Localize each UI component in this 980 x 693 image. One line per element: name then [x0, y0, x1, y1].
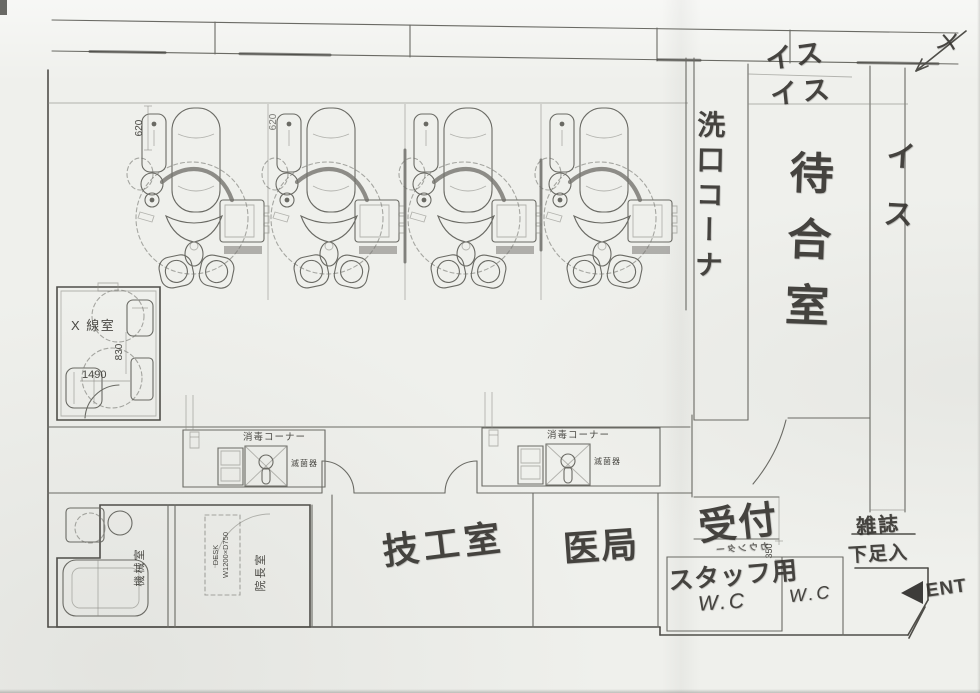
chair-note-right: イス [870, 139, 920, 257]
magazines-label: 雑誌 [855, 508, 901, 540]
desk-label-2: W1200×D750 [221, 532, 230, 578]
sterilizer-label-2: 滅菌器 [594, 456, 621, 466]
dental-unit-2 [262, 108, 404, 290]
dental-unit-3 [399, 108, 541, 290]
sterilize-label-1: 消毒コーナー [243, 431, 306, 443]
rinse-corner-label: 洗口コーナ [686, 110, 729, 286]
desk-label-1: DESK [211, 545, 220, 565]
public-wc-label: W.C [788, 582, 833, 607]
sterilize-counter-2: 消毒コーナー 滅菌器 [482, 392, 660, 486]
chair-note-2: イス [768, 67, 837, 113]
waiting-room-label: 待合室 [769, 149, 840, 349]
doctors-office-label: 医局 [561, 515, 640, 572]
scan-bottom-edge [0, 689, 980, 693]
xray-room-label: X 線室 [71, 318, 115, 333]
scan-corner-artifact [0, 0, 7, 15]
xray-room: X 線室 830 1490 [57, 283, 160, 420]
sterilize-counter-1: 消毒コーナー 滅菌器 [183, 395, 325, 487]
director-room-label: 院長室 [253, 553, 267, 592]
dim-620-1: 620 [134, 119, 145, 136]
dental-unit-4 [535, 108, 677, 290]
dim-830: 830 [114, 343, 125, 360]
machine-director-block: 機械室 院長室 DESK W1200×D750 [57, 505, 310, 627]
entrance-arrow [901, 581, 925, 638]
staff-wc-label: W.C [697, 589, 748, 616]
scanned-floor-plan: 620 620 X 線室 830 1490 [0, 0, 980, 693]
machine-room-label: 機械室 [132, 548, 146, 587]
dim-1490: 1490 [82, 369, 106, 381]
shoe-shelf-label: 下足入 [847, 537, 908, 567]
dim-620-2: 620 [268, 113, 279, 130]
sterilize-label-2: 消毒コーナー [547, 429, 610, 441]
dim-unit-pitch: 620 620 [134, 106, 279, 150]
sterilizer-label-1: 滅菌器 [291, 458, 318, 468]
